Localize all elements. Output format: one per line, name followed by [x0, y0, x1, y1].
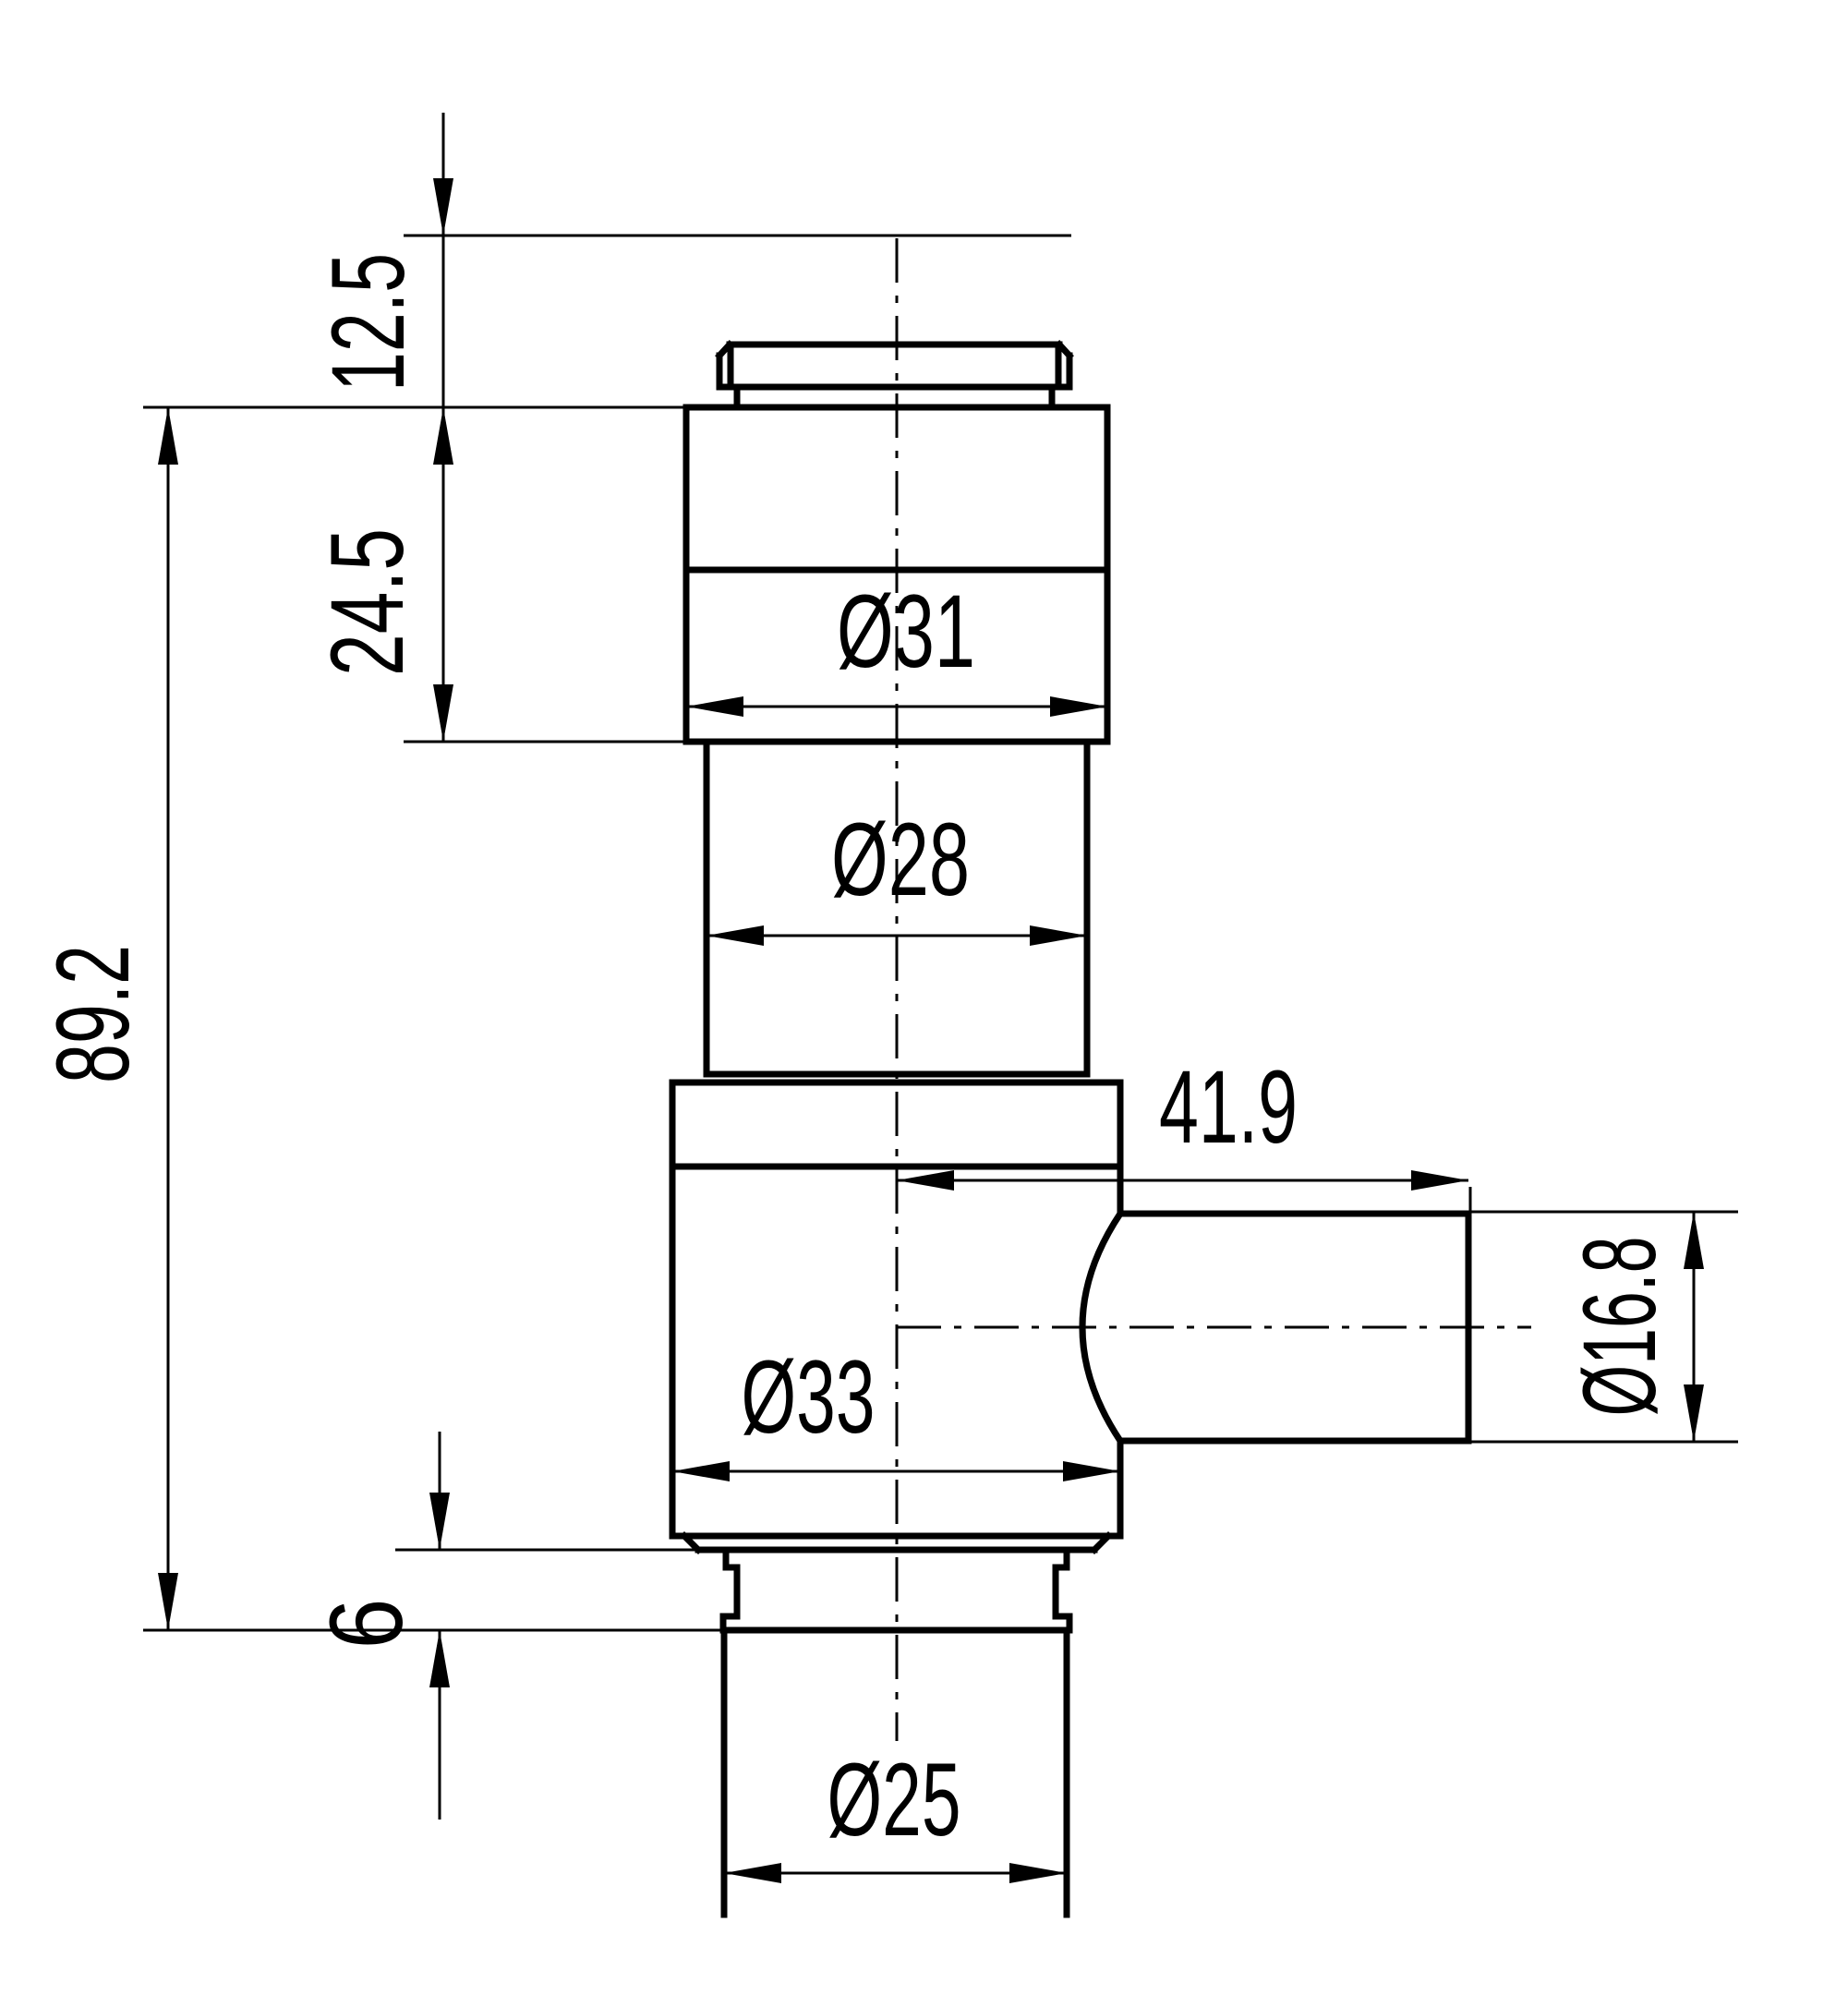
dim-text-24-5: 24.5: [309, 528, 425, 676]
arrow-up-shared-441: [433, 407, 453, 465]
technical-drawing-page: 12.5 24.5 89.2 6 Ø31 Ø28 Ø33 Ø25 41.9 Ø1…: [0, 0, 1848, 1995]
dim-text-dia25: Ø25: [827, 1742, 961, 1857]
dim-text-41-9: 41.9: [1159, 1049, 1298, 1165]
arrow-left-dia33: [672, 1461, 730, 1481]
arrow-down-dia16-8: [1684, 1384, 1704, 1442]
arrow-left-41-9: [897, 1170, 954, 1191]
arrow-down-12-5: [433, 178, 453, 236]
arrow-up-6: [429, 1630, 450, 1687]
arrow-down-24-5: [433, 684, 453, 742]
arrow-left-dia25: [724, 1863, 781, 1883]
dim-text-dia31: Ø31: [837, 574, 975, 689]
arrow-left-dia28: [707, 925, 764, 946]
dim-text-dia28: Ø28: [831, 802, 970, 917]
arrow-up-dia16-8: [1684, 1212, 1704, 1269]
arrow-up-89-2: [158, 407, 178, 465]
arrow-down-6: [429, 1493, 450, 1550]
arrow-right-dia33: [1063, 1461, 1120, 1481]
arrow-right-dia31: [1050, 696, 1107, 717]
arrow-right-dia28: [1030, 925, 1087, 946]
arrow-right-dia25: [1009, 1863, 1067, 1883]
extension-lines: [143, 236, 1738, 1630]
dim-text-6: 6: [308, 1599, 424, 1650]
technical-drawing-canvas: 12.5 24.5 89.2 6 Ø31 Ø28 Ø33 Ø25 41.9 Ø1…: [0, 0, 1848, 1995]
arrow-left-dia31: [686, 696, 743, 717]
dim-text-89-2: 89.2: [35, 945, 151, 1083]
dimension-labels: 12.5 24.5 89.2 6 Ø31 Ø28 Ø33 Ø25 41.9 Ø1…: [35, 253, 1677, 1857]
arrow-right-41-9: [1411, 1170, 1468, 1191]
top-cap: [719, 345, 1069, 407]
dim-text-12-5: 12.5: [310, 253, 426, 392]
dim-text-dia16-8: Ø16.8: [1562, 1237, 1677, 1417]
dim-text-dia33: Ø33: [742, 1339, 876, 1455]
centerlines: [897, 238, 1531, 1741]
part-outline: [672, 345, 1468, 1915]
arrow-down-89-2: [158, 1573, 178, 1630]
